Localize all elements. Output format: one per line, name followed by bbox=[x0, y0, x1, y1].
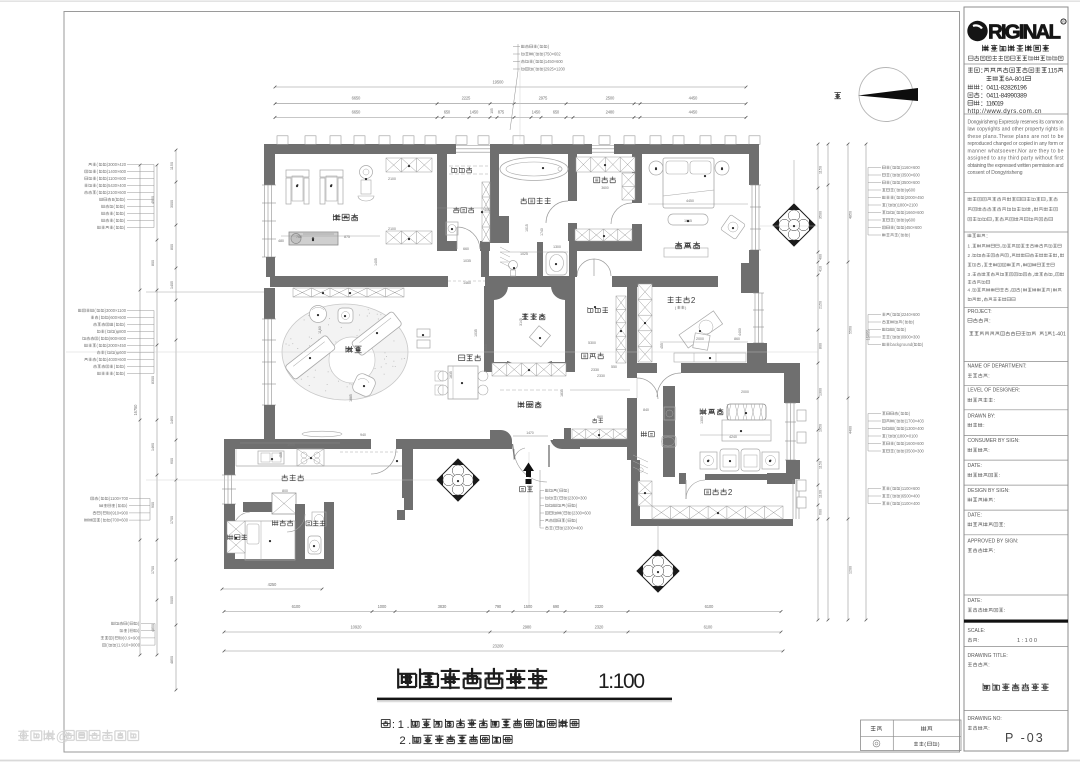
svg-text:)0.9×900: )0.9×900 bbox=[123, 635, 141, 640]
svg-text:)2000×450: )2000×450 bbox=[905, 195, 925, 200]
svg-text:obtaining the expressed writte: obtaining the expressed written permissi… bbox=[968, 163, 1064, 169]
svg-text:4850: 4850 bbox=[848, 210, 853, 219]
svg-text:，: ， bbox=[1031, 208, 1036, 213]
svg-text:1:100: 1:100 bbox=[598, 670, 645, 693]
svg-text:)1800×0100: )1800×0100 bbox=[896, 434, 918, 439]
svg-text:6A-801: 6A-801 bbox=[1005, 76, 1025, 83]
svg-text:P -03: P -03 bbox=[1005, 731, 1045, 745]
svg-text:4450: 4450 bbox=[686, 199, 694, 203]
svg-text:)3000×1100: )3000×1100 bbox=[105, 308, 127, 313]
svg-text:1405: 1405 bbox=[169, 280, 174, 289]
svg-text:860: 860 bbox=[597, 415, 603, 419]
svg-text:940: 940 bbox=[360, 433, 366, 437]
svg-text:115: 115 bbox=[1048, 68, 1058, 75]
svg-text:4.: 4. bbox=[968, 288, 973, 293]
svg-text:1460: 1460 bbox=[169, 415, 174, 424]
svg-text:1460: 1460 bbox=[463, 281, 471, 285]
svg-text:)φ600: )φ600 bbox=[905, 188, 916, 193]
svg-text:2320: 2320 bbox=[595, 604, 604, 609]
svg-text:2: 2 bbox=[728, 488, 733, 497]
svg-text:860: 860 bbox=[734, 337, 740, 341]
svg-text:400: 400 bbox=[484, 208, 490, 212]
svg-text:)3500×300: )3500×300 bbox=[905, 449, 925, 454]
svg-text:)1400×600: )1400×600 bbox=[107, 169, 127, 174]
svg-text:)700×600: )700×600 bbox=[111, 518, 129, 523]
svg-text:4400: 4400 bbox=[738, 328, 742, 336]
svg-text:：: ： bbox=[986, 233, 991, 238]
svg-text::: : bbox=[988, 448, 989, 454]
svg-text:)1.910×9000: )1.910×9000 bbox=[117, 643, 141, 648]
svg-text:)1100×700: )1100×700 bbox=[109, 496, 129, 501]
svg-text:)2300×400: )2300×400 bbox=[564, 526, 584, 531]
svg-text:650: 650 bbox=[444, 110, 451, 115]
svg-text:DRAWING NO:: DRAWING NO: bbox=[968, 716, 1002, 722]
svg-text:1835: 1835 bbox=[449, 371, 453, 379]
svg-text:1500: 1500 bbox=[524, 604, 533, 609]
svg-text:2330: 2330 bbox=[597, 374, 605, 378]
svg-text:600: 600 bbox=[169, 457, 174, 464]
svg-text:2330: 2330 bbox=[591, 367, 600, 372]
svg-text::: : bbox=[988, 726, 989, 732]
svg-text:RIGINAL: RIGINAL bbox=[988, 21, 1060, 44]
svg-text:1035: 1035 bbox=[463, 259, 471, 263]
svg-text:550: 550 bbox=[611, 365, 617, 369]
svg-text:)φ600: )φ600 bbox=[905, 218, 916, 223]
svg-text:3500: 3500 bbox=[818, 210, 823, 219]
svg-text:)2300×600: )2300×600 bbox=[572, 511, 592, 516]
svg-text:)3500×600: )3500×600 bbox=[901, 173, 921, 178]
svg-text:)2100×600: )2100×600 bbox=[107, 190, 127, 195]
svg-text:)450×600: )450×600 bbox=[905, 225, 923, 230]
svg-text:assigned to any third party wi: assigned to any third party without firs… bbox=[968, 156, 1065, 162]
svg-text:@: @ bbox=[56, 728, 70, 744]
svg-text:)6500×400: )6500×400 bbox=[901, 494, 921, 499]
svg-text:)0900×300: )0900×300 bbox=[901, 335, 921, 340]
svg-text:DATE:: DATE: bbox=[968, 463, 982, 469]
svg-text::: : bbox=[983, 423, 984, 429]
svg-text:4250: 4250 bbox=[268, 582, 277, 587]
svg-text:)1450×600: )1450×600 bbox=[544, 59, 564, 64]
svg-text:http://www.dyrs.com.cn: http://www.dyrs.com.cn bbox=[968, 108, 1043, 115]
svg-text:，: ， bbox=[1046, 198, 1051, 203]
svg-text:2.: 2. bbox=[399, 735, 411, 747]
svg-text:background(: background( bbox=[890, 342, 914, 347]
svg-text:：0411-84990389: ：0411-84990389 bbox=[980, 93, 1027, 100]
svg-text:)1100×600: )1100×600 bbox=[901, 486, 921, 491]
svg-text:3000: 3000 bbox=[169, 199, 174, 208]
svg-text:6100: 6100 bbox=[704, 625, 713, 630]
svg-text:1-401: 1-401 bbox=[1052, 332, 1066, 338]
svg-text:16750: 16750 bbox=[133, 404, 138, 416]
svg-text:10920: 10920 bbox=[351, 625, 363, 630]
svg-text:)1600×600: )1600×600 bbox=[905, 441, 925, 446]
svg-text:1160: 1160 bbox=[318, 326, 322, 334]
svg-text:105: 105 bbox=[490, 108, 494, 114]
svg-text:1150: 1150 bbox=[169, 161, 174, 170]
svg-text:4240: 4240 bbox=[729, 435, 737, 439]
svg-text:400: 400 bbox=[818, 253, 823, 260]
svg-text:650: 650 bbox=[553, 110, 560, 115]
svg-text:19500: 19500 bbox=[493, 80, 505, 85]
svg-text::: : bbox=[1004, 608, 1005, 614]
svg-text:3600: 3600 bbox=[601, 186, 608, 190]
svg-text:2980: 2980 bbox=[523, 625, 532, 630]
svg-text:manner whatsoever.Nor are they: manner whatsoever.Nor are they to be bbox=[968, 148, 1064, 154]
svg-text:1700: 1700 bbox=[169, 515, 174, 524]
svg-text:)2240×600: )2240×600 bbox=[901, 312, 921, 317]
svg-text:these plans.These plans are no: these plans.These plans are not to be bbox=[968, 134, 1064, 140]
svg-text:): ) bbox=[938, 742, 940, 748]
svg-text:)1800×2100: )1800×2100 bbox=[896, 203, 918, 208]
svg-text:1150: 1150 bbox=[818, 165, 823, 174]
svg-text:1015: 1015 bbox=[525, 224, 529, 232]
svg-text:1150: 1150 bbox=[818, 460, 823, 469]
svg-text:660: 660 bbox=[463, 247, 469, 251]
svg-text:1740: 1740 bbox=[540, 228, 544, 236]
svg-text:900: 900 bbox=[150, 501, 155, 508]
svg-text:4400: 4400 bbox=[848, 425, 853, 434]
svg-text:PROJECT:: PROJECT: bbox=[968, 309, 992, 315]
svg-text:1885: 1885 bbox=[349, 394, 353, 402]
svg-text:1:100: 1:100 bbox=[1017, 638, 1039, 644]
svg-text:3830: 3830 bbox=[438, 604, 447, 609]
svg-text:800: 800 bbox=[818, 342, 823, 349]
svg-text:)2300×300: )2300×300 bbox=[568, 496, 588, 501]
svg-text:DRAWN BY:: DRAWN BY: bbox=[968, 413, 996, 419]
svg-text:reproduced changed or copied i: reproduced changed or copied in any form… bbox=[968, 141, 1064, 147]
svg-text:1450: 1450 bbox=[470, 110, 479, 115]
svg-text:2000: 2000 bbox=[741, 390, 749, 394]
svg-text:790: 790 bbox=[495, 604, 502, 609]
svg-text:1000: 1000 bbox=[287, 443, 295, 447]
svg-text::: : bbox=[1004, 522, 1005, 528]
svg-text:1025: 1025 bbox=[520, 252, 528, 256]
svg-text:6100: 6100 bbox=[705, 604, 714, 609]
svg-text:2150: 2150 bbox=[818, 300, 823, 309]
svg-text:23200: 23200 bbox=[493, 644, 505, 649]
svg-text:1700: 1700 bbox=[150, 565, 155, 574]
svg-text:)910×900: )910×900 bbox=[111, 510, 129, 515]
svg-text:)1700×403: )1700×403 bbox=[905, 419, 925, 424]
svg-text:455: 455 bbox=[660, 343, 664, 349]
svg-text:：: ： bbox=[980, 68, 986, 75]
svg-text:DATE:: DATE: bbox=[968, 513, 982, 519]
svg-text:)φ600: )φ600 bbox=[115, 350, 126, 355]
svg-text:2: 2 bbox=[691, 296, 696, 305]
svg-text:600: 600 bbox=[454, 208, 460, 212]
svg-text:DRAWING TITLE:: DRAWING TITLE: bbox=[968, 653, 1008, 659]
svg-text:Dongyirisheng Expressly reserv: Dongyirisheng Expressly reserves its com… bbox=[968, 119, 1064, 125]
svg-text:SCALE:: SCALE: bbox=[968, 628, 986, 634]
svg-text:)750×602: )750×602 bbox=[544, 52, 562, 57]
svg-text::: : bbox=[988, 663, 989, 669]
svg-text:law copyrights and other prope: law copyrights and other property rights… bbox=[968, 127, 1064, 133]
svg-text:DATE:: DATE: bbox=[968, 598, 982, 604]
svg-text:1.: 1. bbox=[968, 244, 973, 249]
svg-text:)3000×420: )3000×420 bbox=[107, 162, 127, 167]
svg-text:2000: 2000 bbox=[696, 337, 704, 341]
svg-text:800: 800 bbox=[282, 489, 288, 493]
svg-text:5005: 5005 bbox=[169, 595, 174, 604]
svg-text:1000: 1000 bbox=[378, 604, 387, 609]
svg-text:1035: 1035 bbox=[474, 329, 478, 337]
svg-text:)2925×1200: )2925×1200 bbox=[544, 67, 566, 72]
svg-text::: : bbox=[994, 548, 995, 554]
svg-text:：0411-82826196: ：0411-82826196 bbox=[980, 85, 1027, 92]
svg-text:4450: 4450 bbox=[689, 96, 698, 101]
svg-text:2480: 2480 bbox=[606, 110, 615, 115]
svg-text:CONSUMER BY SIGN:: CONSUMER BY SIGN: bbox=[968, 438, 1020, 444]
svg-text:1300: 1300 bbox=[818, 387, 823, 396]
svg-text:4850: 4850 bbox=[169, 655, 174, 664]
svg-text:5560: 5560 bbox=[848, 325, 853, 334]
svg-text:600: 600 bbox=[818, 508, 823, 515]
svg-text:B(: B( bbox=[112, 197, 117, 202]
svg-text:)2000×450: )2000×450 bbox=[107, 343, 127, 348]
svg-text:)1660×600: )1660×600 bbox=[905, 210, 925, 215]
svg-text:455: 455 bbox=[279, 452, 283, 458]
svg-text:2225: 2225 bbox=[462, 96, 471, 101]
svg-text:2500: 2500 bbox=[606, 96, 615, 101]
svg-text:NAME OF DEPARTMENT:: NAME OF DEPARTMENT: bbox=[968, 364, 1027, 370]
svg-text:DESIGN BY SIGN:: DESIGN BY SIGN: bbox=[968, 488, 1010, 494]
svg-text:)1300×400: )1300×400 bbox=[905, 426, 925, 431]
svg-text:2100: 2100 bbox=[388, 177, 396, 181]
svg-text:6100: 6100 bbox=[292, 604, 301, 609]
svg-text:2100: 2100 bbox=[388, 227, 396, 231]
svg-text::: : bbox=[999, 473, 1000, 479]
svg-text:2.: 2. bbox=[968, 253, 973, 258]
svg-text:690: 690 bbox=[553, 604, 560, 609]
svg-text:3145: 3145 bbox=[519, 318, 523, 326]
svg-text:1: 1 bbox=[1045, 332, 1048, 338]
svg-text:)1100×600: )1100×600 bbox=[107, 176, 127, 181]
svg-text:：116019: ：116019 bbox=[980, 101, 1004, 108]
svg-text::: : bbox=[988, 374, 989, 380]
svg-text:480: 480 bbox=[278, 239, 284, 243]
svg-text:)4030×600: )4030×600 bbox=[107, 357, 127, 362]
svg-text:1450: 1450 bbox=[532, 110, 541, 115]
svg-text::1.: :1. bbox=[392, 719, 410, 731]
svg-text:6650: 6650 bbox=[352, 110, 361, 115]
svg-text:1855: 1855 bbox=[484, 344, 488, 352]
svg-text:2975: 2975 bbox=[539, 96, 548, 101]
svg-text:800: 800 bbox=[169, 243, 174, 250]
svg-text:)900×800: )900×800 bbox=[109, 336, 127, 341]
svg-text::: : bbox=[978, 638, 979, 644]
svg-text:4450: 4450 bbox=[689, 110, 698, 115]
svg-text:)1100×400: )1100×400 bbox=[901, 501, 921, 506]
svg-text:1460: 1460 bbox=[150, 442, 155, 451]
svg-text:1100: 1100 bbox=[818, 489, 823, 498]
svg-text:1835: 1835 bbox=[560, 389, 564, 397]
svg-text:1300: 1300 bbox=[700, 416, 704, 424]
svg-text:875: 875 bbox=[498, 110, 505, 115]
svg-text:APPROVED BY SIGN:: APPROVED BY SIGN: bbox=[968, 538, 1019, 544]
svg-text:)1160×600: )1160×600 bbox=[901, 165, 921, 170]
svg-text:840: 840 bbox=[643, 408, 649, 412]
svg-text:1405: 1405 bbox=[374, 258, 378, 266]
svg-text::: : bbox=[989, 319, 991, 325]
svg-text:)600×600: )600×600 bbox=[109, 315, 127, 320]
svg-text:1470: 1470 bbox=[526, 431, 533, 435]
svg-text:760: 760 bbox=[296, 235, 302, 239]
svg-text::: : bbox=[994, 398, 995, 404]
svg-text:(: ( bbox=[924, 742, 926, 748]
svg-text:1950: 1950 bbox=[818, 423, 823, 432]
svg-text:3.: 3. bbox=[968, 272, 973, 277]
svg-text:1300: 1300 bbox=[553, 245, 561, 249]
svg-text:consent of Dongyirisheng: consent of Dongyirisheng bbox=[968, 170, 1023, 176]
svg-text:2320: 2320 bbox=[595, 625, 604, 630]
svg-text::: : bbox=[994, 498, 995, 504]
svg-text:)3500×600: )3500×600 bbox=[901, 180, 921, 185]
svg-text:8300: 8300 bbox=[150, 375, 155, 384]
svg-text:800: 800 bbox=[150, 259, 155, 266]
svg-text:1200: 1200 bbox=[848, 565, 853, 574]
svg-text:LEVEL OF DESIGNER:: LEVEL OF DESIGNER: bbox=[968, 388, 1021, 394]
svg-text:410: 410 bbox=[818, 265, 823, 272]
svg-text:6650: 6650 bbox=[352, 96, 361, 101]
svg-text:5300: 5300 bbox=[588, 341, 596, 345]
svg-text:)5430×400: )5430×400 bbox=[107, 183, 127, 188]
svg-text:，: ， bbox=[992, 218, 997, 223]
svg-text:)φ800: )φ800 bbox=[115, 329, 126, 334]
svg-text:875: 875 bbox=[344, 235, 350, 239]
